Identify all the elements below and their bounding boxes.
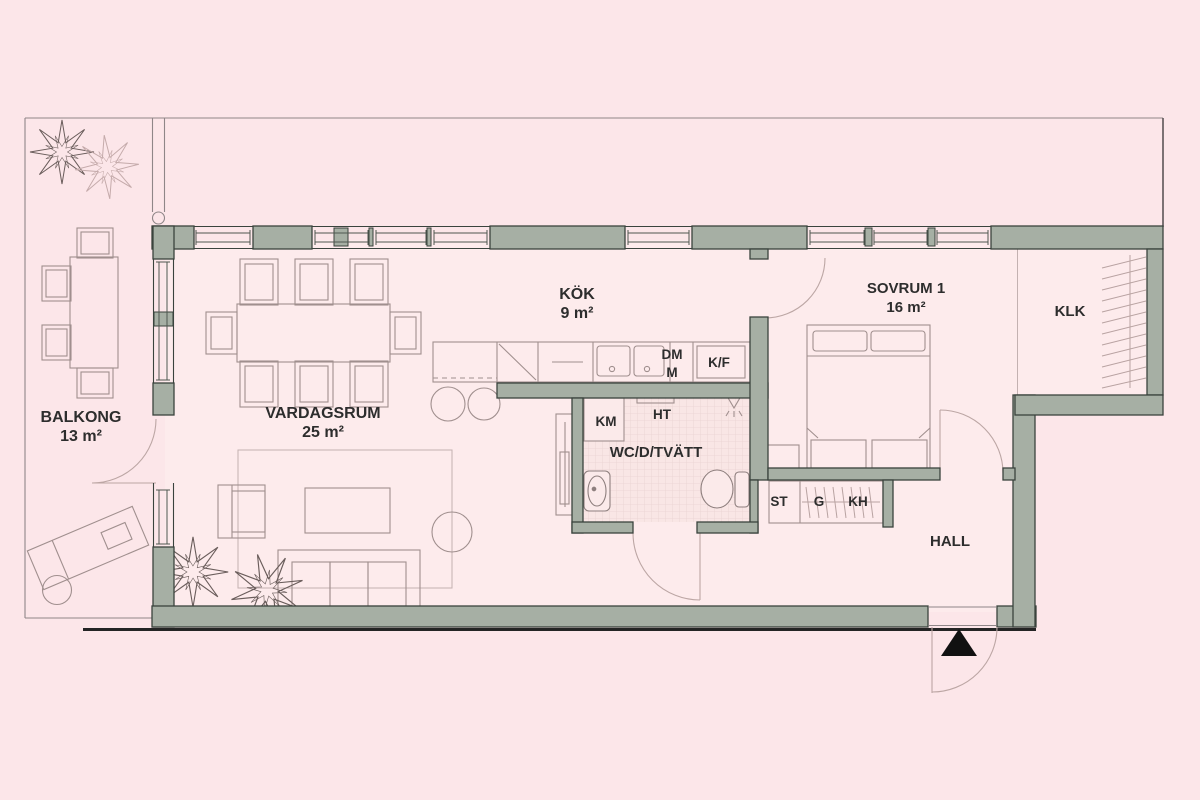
label-microwave: M [666, 365, 677, 380]
room-label-kitchen: KÖK [559, 284, 595, 303]
room-label-bedroom: SOVRUM 1 [867, 280, 945, 297]
room-area-balcony: 13 m² [60, 428, 102, 445]
label-wardrobe: G [814, 494, 825, 509]
label-hat-shelf: KH [848, 494, 868, 509]
room-label-bathroom: WC/D/TVÄTT [610, 444, 702, 461]
floor-plan-drawing: BALKONG 13 m² VARDAGSRUM 25 m² KÖK 9 m² … [0, 0, 1200, 800]
label-fridge-freezer: K/F [708, 355, 730, 370]
room-area-bedroom: 16 m² [886, 299, 925, 316]
room-label-living-room: VARDAGSRUM [265, 405, 380, 422]
room-label-closet: KLK [1055, 303, 1086, 320]
room-label-balcony: BALKONG [41, 409, 122, 426]
room-label-hall: HALL [930, 533, 970, 550]
label-dishwasher: DM [662, 347, 683, 362]
room-area-kitchen: 9 m² [561, 305, 594, 322]
label-washing-machine: KM [596, 414, 617, 429]
toilet [701, 470, 749, 508]
room-area-living-room: 25 m² [302, 424, 344, 441]
bathroom-sink [584, 471, 610, 511]
label-storage: ST [770, 494, 788, 509]
label-towel-dryer: HT [653, 407, 672, 422]
floor-plan: BALKONG 13 m² VARDAGSRUM 25 m² KÖK 9 m² … [0, 0, 1200, 800]
